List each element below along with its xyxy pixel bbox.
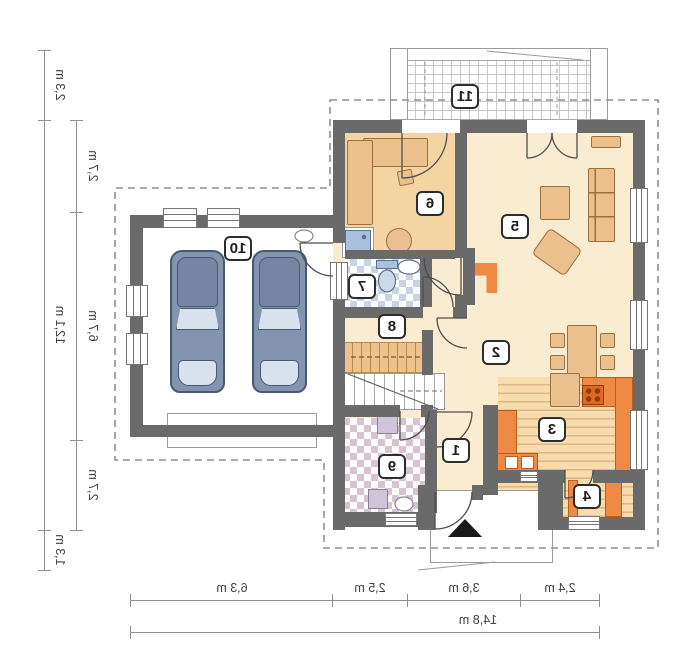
room-number: 9	[388, 458, 396, 475]
room-label-7: 7	[348, 274, 376, 299]
utility-sink	[395, 497, 413, 511]
dimension-label: 2,4 m	[544, 581, 575, 595]
plan-linework	[0, 0, 700, 664]
dimension-label: 12,1 m	[53, 306, 67, 344]
room-label-10: 10	[224, 236, 252, 261]
room-label-9: 9	[378, 454, 406, 479]
room-number: 1	[452, 442, 460, 459]
room-number: 4	[583, 488, 591, 505]
floor-drain	[295, 230, 313, 242]
dimension-label: 3,6 m	[448, 581, 479, 595]
toilet-bowl	[379, 270, 396, 292]
room-label-8: 8	[378, 314, 406, 339]
dimension-label: 2,3 m	[53, 69, 67, 100]
floor-plan-canvas: 1 2 3 4 5 6 7 8 9 10 11 2,3 m 12,1 m 1,3…	[0, 0, 700, 664]
room-label-11: 11	[451, 84, 479, 109]
dimension-label: 1,3 m	[53, 534, 67, 565]
room-number: 3	[548, 421, 556, 438]
dimension-label: 2,7 m	[86, 150, 100, 181]
dimension-label: 2,7 m	[86, 469, 100, 500]
canopy-diagonal	[418, 562, 495, 570]
room-number: 5	[511, 218, 519, 235]
room-label-2: 2	[482, 340, 510, 365]
room-number: 7	[358, 278, 366, 295]
terrace-diagonal	[487, 51, 583, 60]
room-label-5: 5	[501, 214, 529, 239]
mirrored-plan-wrapper: 1 2 3 4 5 6 7 8 9 10 11 2,3 m 12,1 m 1,3…	[0, 0, 700, 664]
dimension-label: 2,5 m	[354, 581, 385, 595]
room-label-4: 4	[573, 484, 601, 509]
door-swings	[300, 133, 593, 529]
room-label-3: 3	[538, 417, 566, 442]
room-number: 11	[457, 88, 473, 105]
bathroom-sink	[398, 260, 420, 274]
dimension-label: 6,3 m	[216, 581, 247, 595]
room-label-1: 1	[442, 438, 470, 463]
room-label-6: 6	[416, 191, 444, 216]
room-number: 8	[388, 318, 396, 335]
room-number: 10	[230, 240, 247, 257]
dimension-label: 6,7 m	[86, 310, 100, 341]
dimension-label-total: 14,8 m	[459, 613, 497, 627]
room-number: 2	[492, 344, 500, 361]
room-number: 6	[426, 195, 434, 212]
